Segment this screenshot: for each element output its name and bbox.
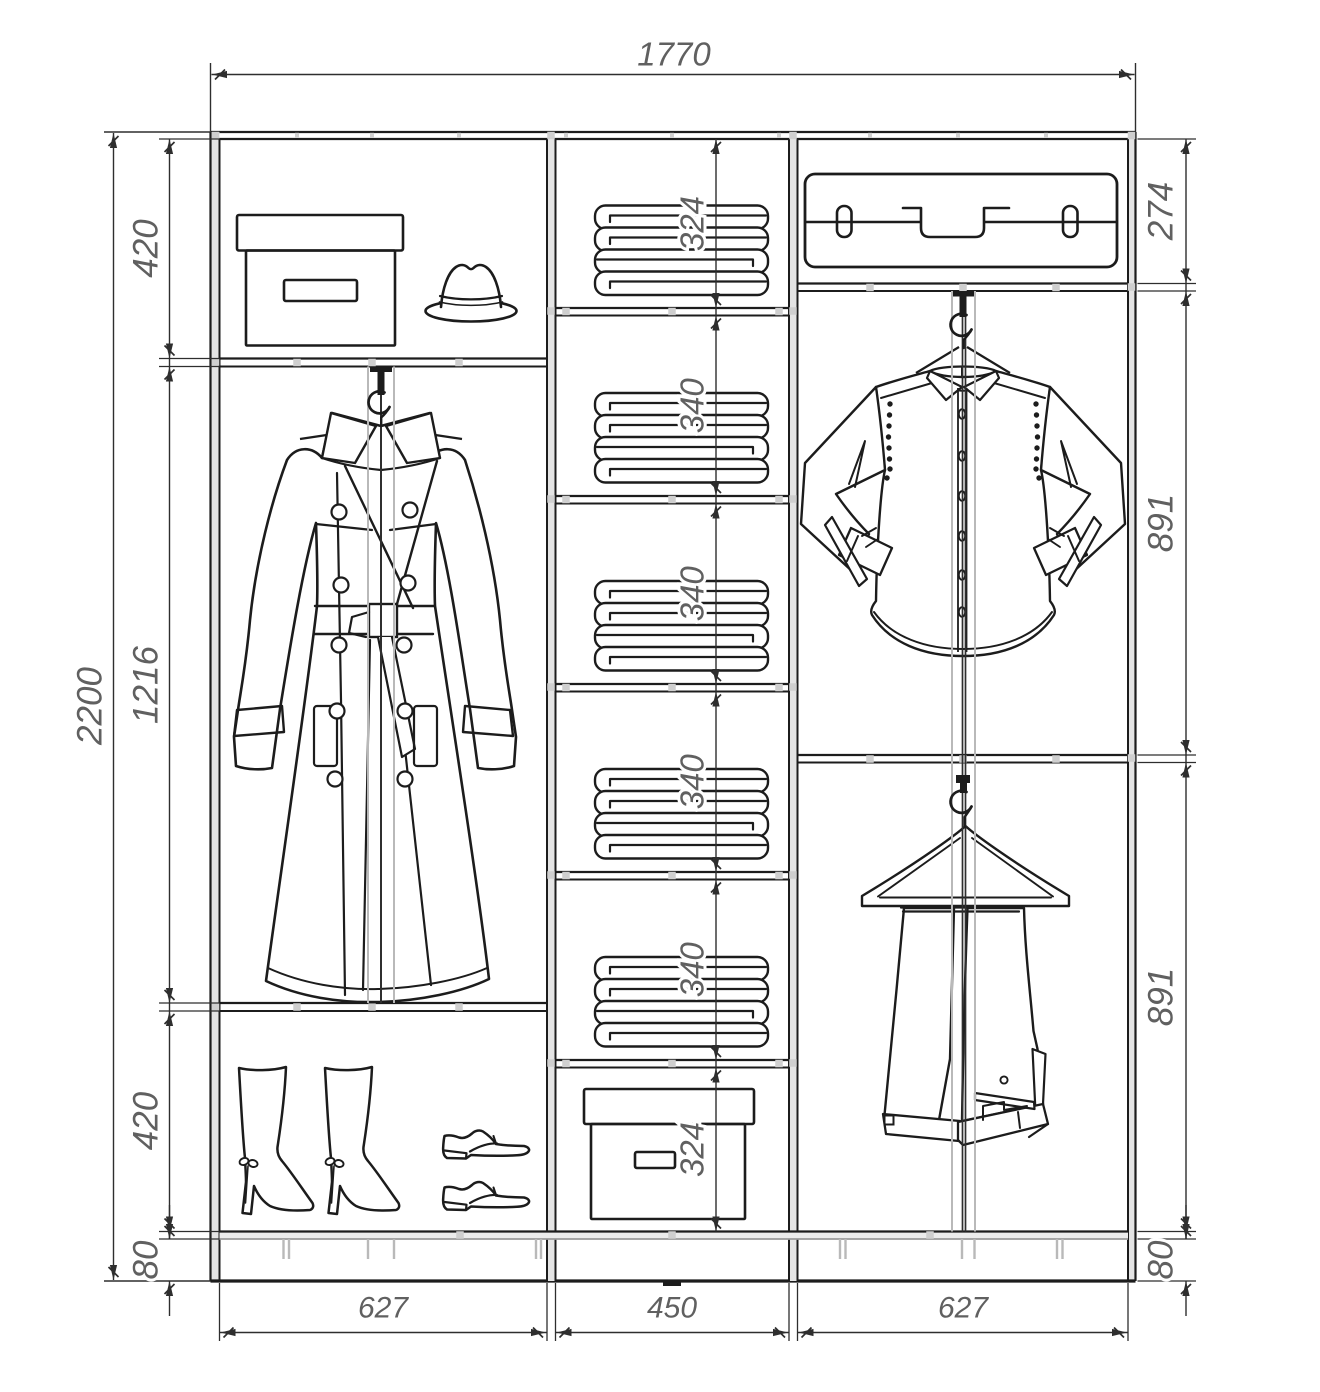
svg-text:891: 891 — [1141, 968, 1180, 1026]
svg-text:340: 340 — [674, 942, 711, 998]
svg-text:1770: 1770 — [637, 36, 711, 73]
svg-text:450: 450 — [647, 1292, 697, 1325]
svg-text:274: 274 — [1141, 182, 1180, 241]
svg-text:340: 340 — [674, 754, 711, 810]
svg-text:1216: 1216 — [126, 646, 165, 724]
svg-text:80: 80 — [126, 1240, 165, 1279]
svg-text:340: 340 — [674, 378, 711, 434]
svg-text:420: 420 — [126, 219, 165, 278]
svg-text:627: 627 — [358, 1292, 409, 1325]
svg-text:420: 420 — [126, 1091, 165, 1150]
svg-text:324: 324 — [674, 196, 711, 251]
svg-text:2200: 2200 — [70, 667, 109, 746]
svg-text:324: 324 — [674, 1122, 711, 1177]
svg-text:80: 80 — [1141, 1240, 1180, 1279]
svg-text:340: 340 — [674, 566, 711, 622]
svg-text:627: 627 — [938, 1292, 989, 1325]
svg-text:891: 891 — [1141, 494, 1180, 552]
